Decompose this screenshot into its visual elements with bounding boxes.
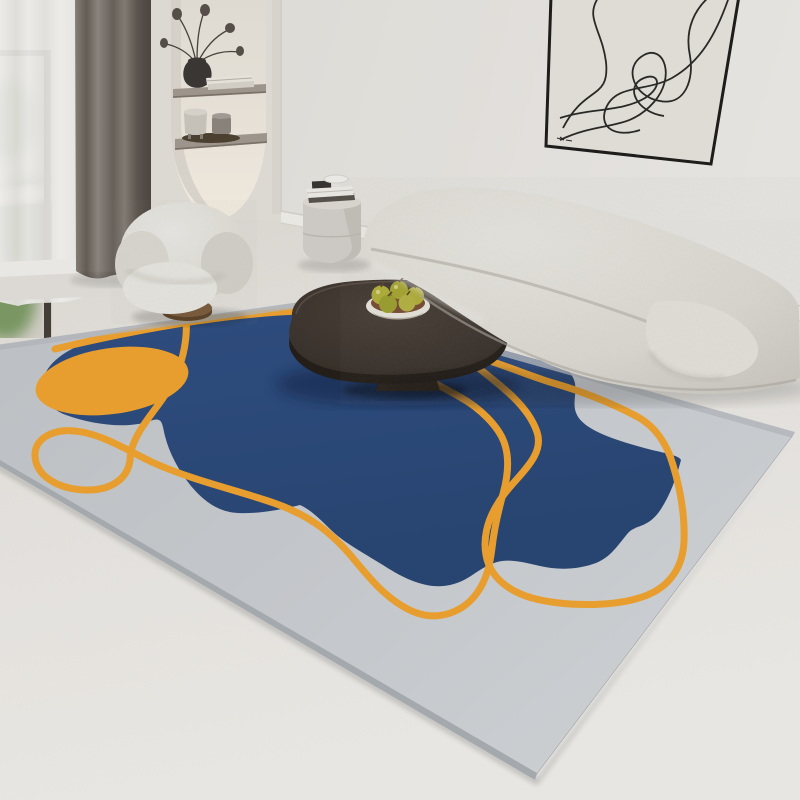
photo-vignette bbox=[0, 0, 800, 800]
scene-canvas bbox=[0, 0, 800, 800]
living-room-photo bbox=[0, 0, 800, 800]
